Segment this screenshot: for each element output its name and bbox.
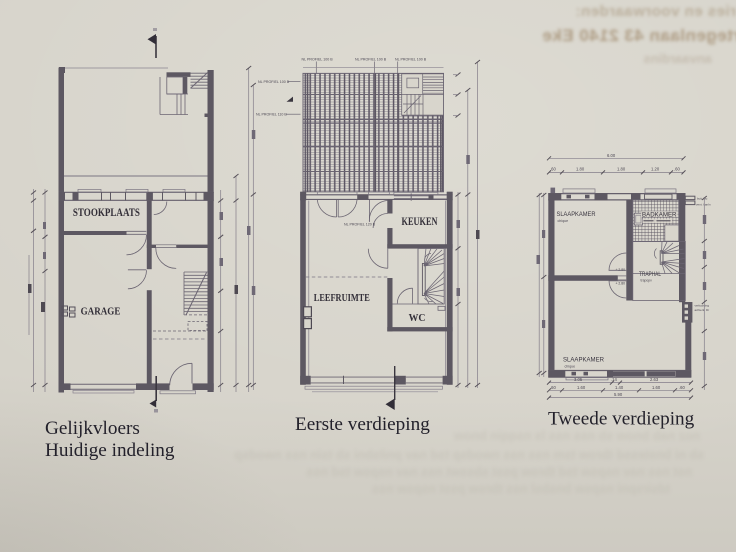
- svg-text:1.80: 1.80: [617, 167, 626, 172]
- svg-text:.14: .14: [611, 377, 617, 382]
- svg-text:TRAPHAL: TRAPHAL: [639, 271, 661, 278]
- svg-text:NL PROFIEL 100 B: NL PROFIEL 100 B: [302, 58, 334, 62]
- svg-text:chique: chique: [565, 365, 576, 369]
- svg-text:1.20: 1.20: [651, 167, 660, 172]
- svg-text:NL PROFIEL 100 B: NL PROFIEL 100 B: [355, 58, 387, 62]
- svg-text:anvaardins: anvaardins: [643, 51, 712, 66]
- svg-text:vent. kanln: vent. kanln: [696, 203, 711, 207]
- svg-text:NL PROFIEL 100 B: NL PROFIEL 100 B: [258, 80, 290, 84]
- svg-text:SLAAPKAMER: SLAAPKAMER: [563, 357, 604, 364]
- svg-text:.60: .60: [679, 385, 685, 390]
- svg-text:BADKAMER: BADKAMER: [642, 211, 677, 218]
- svg-text:NL PROFIEL 120 B: NL PROFIEL 120 B: [344, 223, 376, 227]
- svg-text:6.00: 6.00: [607, 153, 616, 158]
- svg-text:.60: .60: [674, 167, 680, 172]
- svg-text:Huidige indeling: Huidige indeling: [45, 440, 175, 461]
- svg-text:achterk. Dr: achterk. Dr: [695, 308, 710, 312]
- svg-text:GARAGE: GARAGE: [81, 306, 121, 317]
- svg-text:noz nab bnow sb nss nss ls nsq: noz nab bnow sb nss nss ls nsqqin bnow: [454, 429, 700, 443]
- svg-text:.60: .60: [550, 167, 556, 172]
- svg-text:3.05: 3.05: [574, 377, 583, 382]
- svg-text:NL PROFIEL 100 B: NL PROFIEL 100 B: [395, 58, 427, 62]
- svg-text:nst nss nav nspsw tsd tbrow ps: nst nss nav nspsw tsd tbrow psst sbsswt …: [306, 465, 692, 479]
- svg-text:1.40: 1.40: [615, 385, 624, 390]
- svg-text:sb ni bnstessd tbrow tsm nss n: sb ni bnstessd tbrow tsm nss nss nwodsp …: [234, 448, 704, 462]
- svg-text:rtegenlaan 43 2140 Eke: rtegenlaan 43 2140 Eke: [542, 26, 736, 45]
- svg-text:+ 2.80: + 2.80: [616, 282, 626, 286]
- svg-text:1.60: 1.60: [577, 385, 586, 390]
- svg-text:SLAAPKAMER: SLAAPKAMER: [557, 211, 596, 218]
- svg-text:1.80: 1.80: [576, 167, 585, 172]
- svg-text:KEUKEN: KEUKEN: [402, 216, 439, 228]
- svg-text:1.60: 1.60: [652, 385, 661, 390]
- svg-text:tdsirspni nspsw bnsbsl nss tbr: tdsirspni nspsw bnsbsl nss tbrow psst ns…: [372, 482, 670, 496]
- svg-text:STOOKPLAATS: STOOKPLAATS: [73, 207, 140, 219]
- svg-text:Gelijkvloers: Gelijkvloers: [45, 418, 140, 439]
- svg-text:WC: WC: [409, 313, 426, 324]
- svg-text:trapopv: trapopv: [641, 279, 653, 283]
- svg-text:5.90: 5.90: [614, 392, 623, 397]
- svg-text:Tweede verdieping: Tweede verdieping: [548, 409, 695, 430]
- svg-text:ries en voorwaarden:: ries en voorwaarden:: [575, 3, 736, 20]
- svg-text:.60: .60: [550, 385, 556, 390]
- svg-text:chique: chique: [558, 219, 569, 223]
- svg-text:Eerste verdieping: Eerste verdieping: [295, 414, 430, 435]
- svg-text:NL PROFIEL 110 B: NL PROFIEL 110 B: [256, 113, 287, 117]
- svg-text:LEEFRUIMTE: LEEFRUIMTE: [314, 292, 370, 304]
- svg-text:2.63: 2.63: [650, 377, 659, 382]
